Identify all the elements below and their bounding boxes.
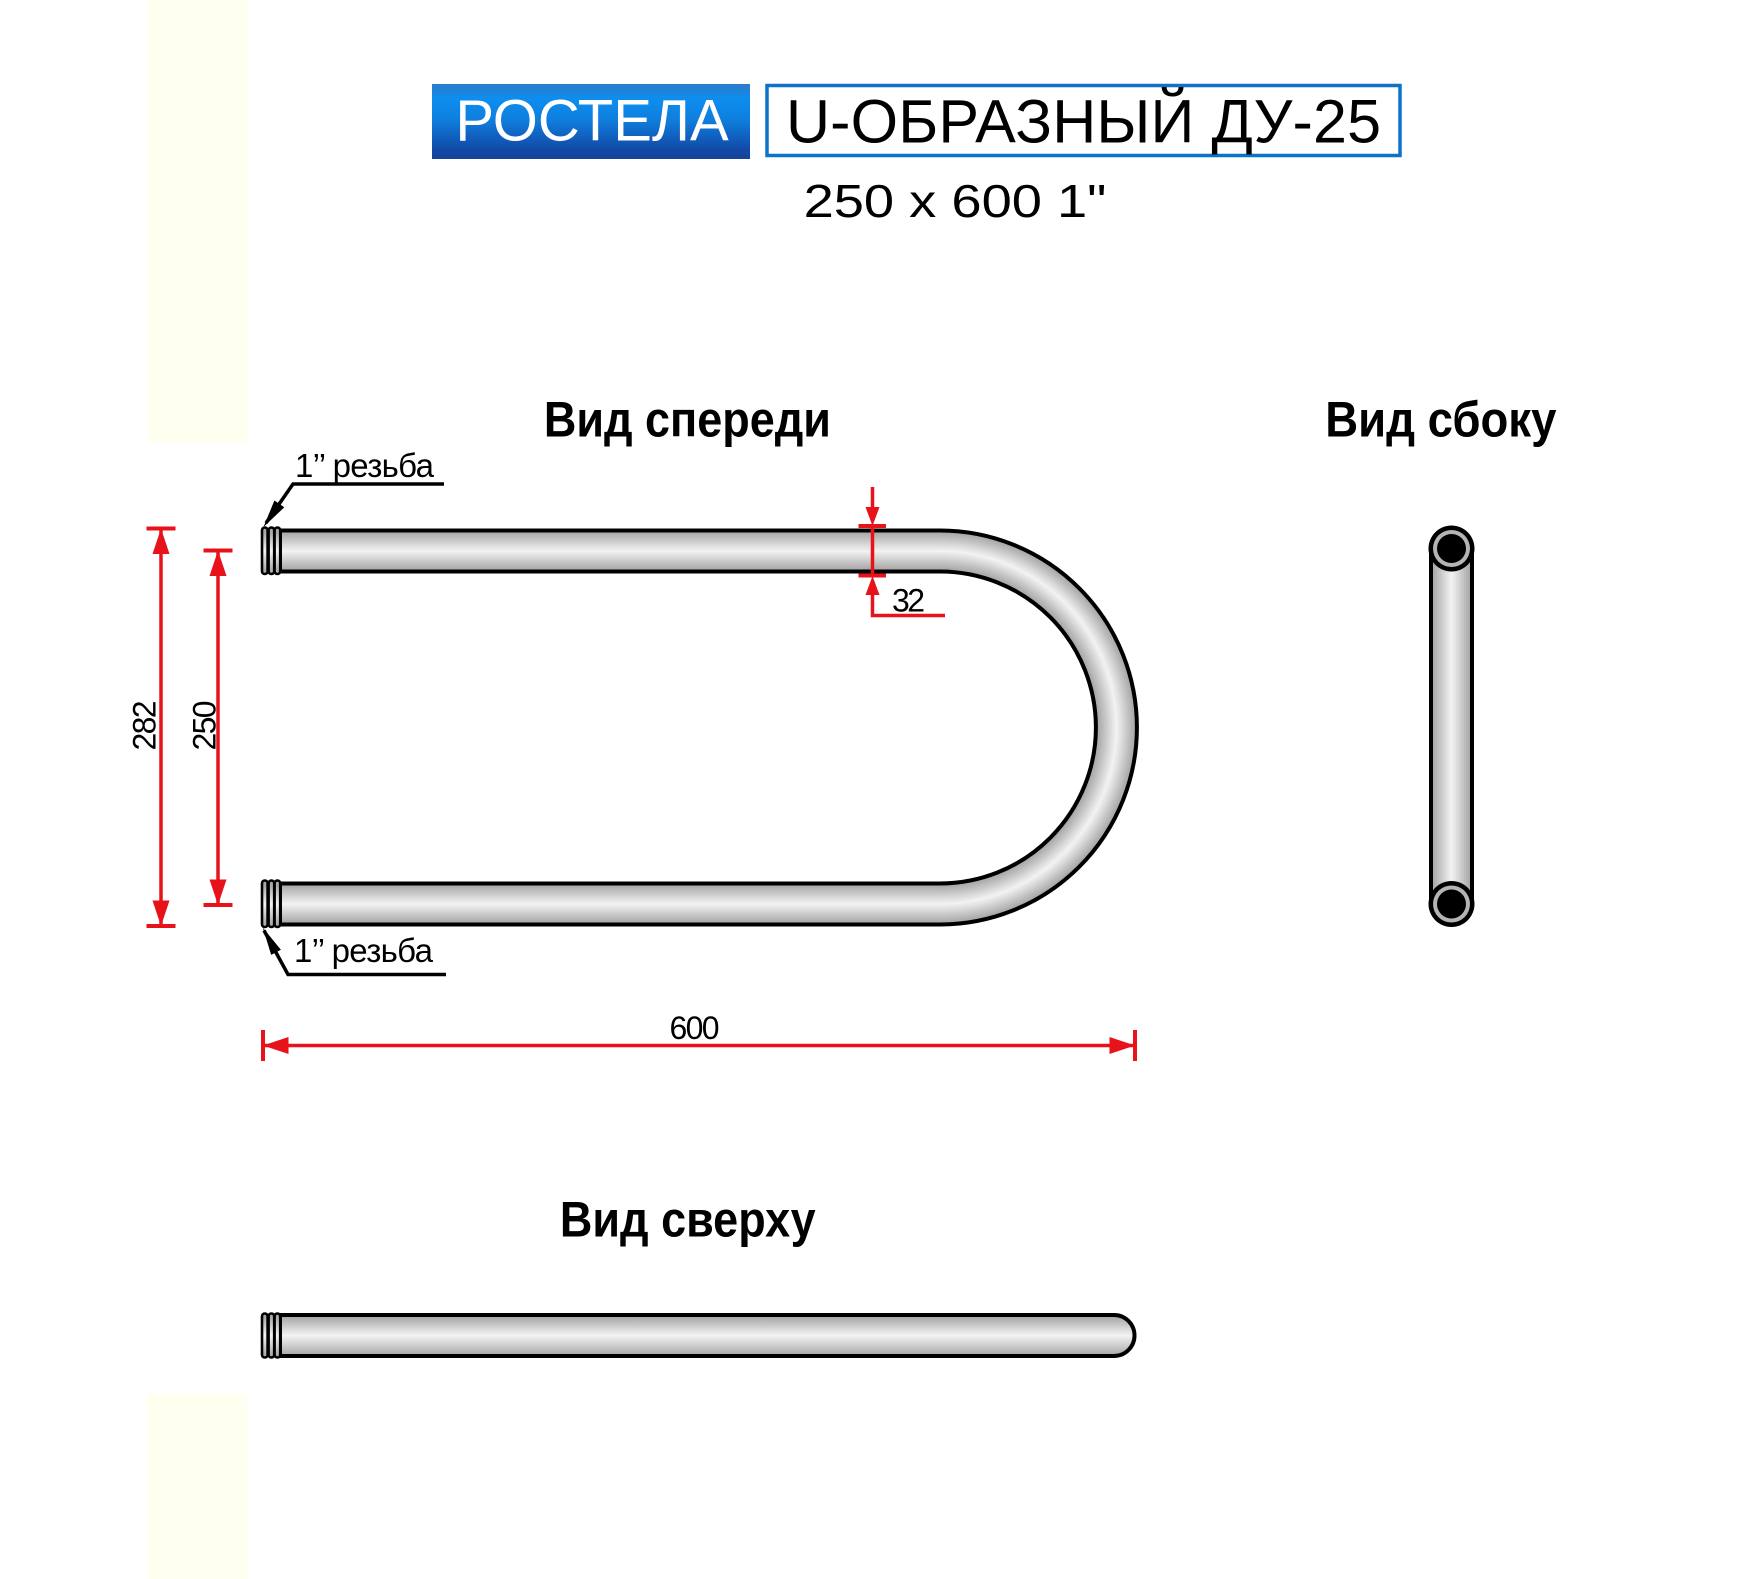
svg-text:1’’ резьба: 1’’ резьба	[294, 932, 434, 969]
svg-text:250 x 600 1": 250 x 600 1"	[804, 175, 1107, 227]
svg-text:РОСТЕЛА: РОСТЕЛА	[455, 89, 729, 154]
svg-text:Вид сверху: Вид сверху	[560, 1192, 816, 1248]
svg-text:U-ОБРАЗНЫЙ ДУ-25: U-ОБРАЗНЫЙ ДУ-25	[786, 87, 1381, 156]
svg-text:282: 282	[127, 701, 163, 751]
svg-text:1’’ резьба: 1’’ резьба	[295, 447, 435, 484]
svg-text:32: 32	[892, 583, 925, 619]
svg-text:Вид сбоку: Вид сбоку	[1325, 393, 1557, 448]
svg-text:600: 600	[670, 1010, 720, 1046]
svg-text:250: 250	[187, 701, 223, 751]
svg-text:Вид спереди: Вид спереди	[544, 392, 831, 448]
